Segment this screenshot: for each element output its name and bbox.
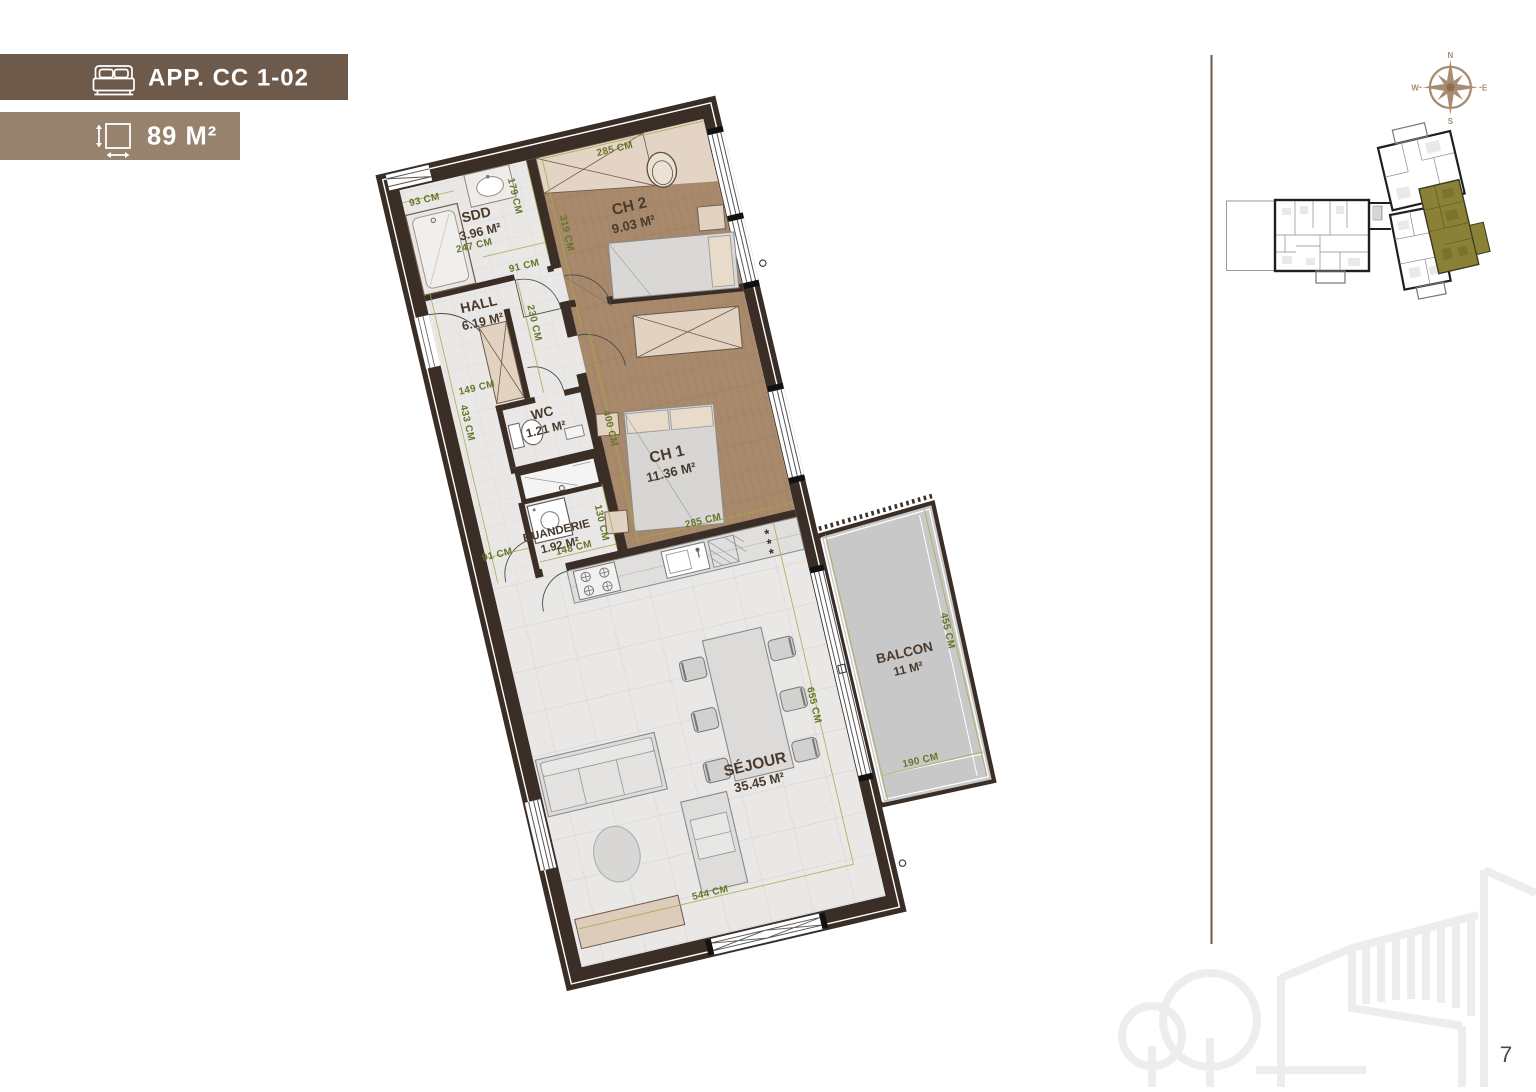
svg-text:N: N bbox=[1448, 51, 1454, 60]
svg-text:7: 7 bbox=[1500, 1042, 1513, 1067]
svg-text:W: W bbox=[1411, 83, 1419, 92]
svg-text:89 M²: 89 M² bbox=[147, 123, 217, 151]
svg-text:E: E bbox=[1482, 83, 1488, 92]
svg-text:S: S bbox=[1448, 117, 1454, 126]
svg-text:APP. CC 1-02: APP. CC 1-02 bbox=[148, 65, 309, 92]
